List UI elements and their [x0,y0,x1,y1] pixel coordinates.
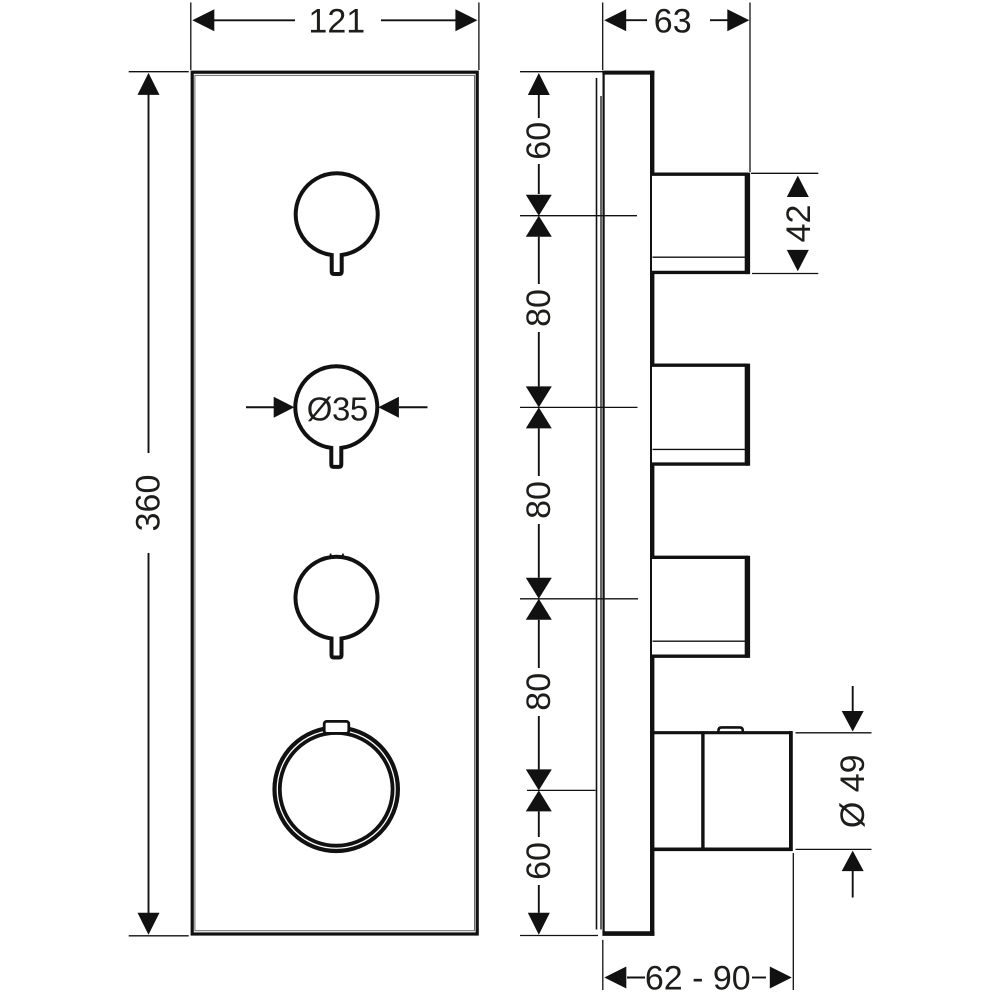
svg-text:63: 63 [654,2,692,40]
svg-text:60: 60 [520,122,558,160]
svg-text:42: 42 [780,205,818,243]
svg-text:62 - 90: 62 - 90 [645,960,751,998]
svg-text:80: 80 [520,289,558,327]
svg-text:Ø35: Ø35 [307,391,368,428]
svg-text:360: 360 [130,475,168,532]
svg-text:60: 60 [520,842,558,880]
svg-text:121: 121 [308,3,365,41]
svg-text:80: 80 [520,673,558,711]
svg-text:80: 80 [520,481,558,519]
svg-text:Ø 49: Ø 49 [834,754,872,828]
